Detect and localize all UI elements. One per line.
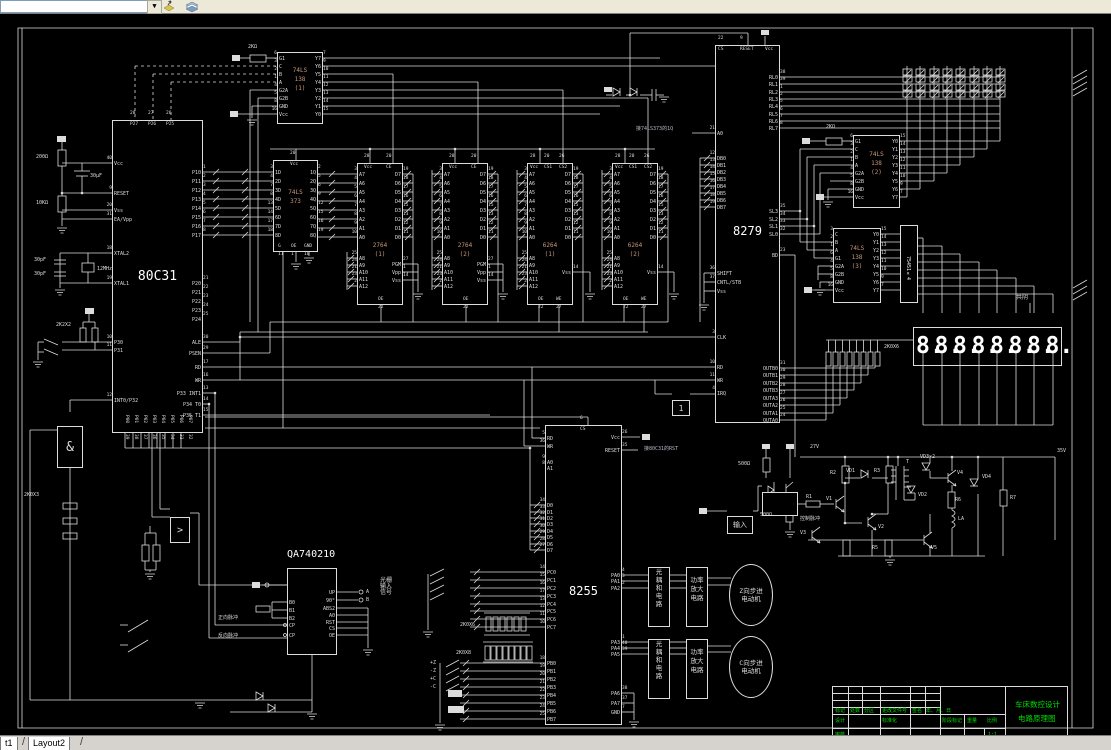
pin-GND: GND8 [279,104,288,110]
display-digit: 8. [1027,331,1043,361]
titleblock-line [862,686,863,714]
pin-A0: A0 [329,613,335,619]
pin-A2: A28 [359,217,365,223]
terminal-block [604,87,612,92]
chip-8279: 8279A021DB012DB113DB214DB315DB416DB517DB… [715,45,780,423]
qa740210-label: QA740210 [287,552,335,558]
pin-A5: A55 [359,190,365,196]
terminal-block [699,508,707,514]
diode-icon [256,692,263,700]
pin-Y0: Y015 [873,232,879,238]
pc-label: +C [430,676,436,682]
pin-D6: D618 [565,181,571,187]
pin-A: A1 [855,163,858,169]
vd1-label: VD1 [846,468,855,474]
drawing-canvas[interactable]: & > 1 输入 光 耦 和 电 路 功率 放大 电路 Z向步进 电动机 光 耦… [0,14,1111,735]
pin-D4: D416 [395,199,401,205]
mc-label: -C [430,684,436,690]
pin-P21: P2122 [192,290,201,296]
pin-SL0: SL032 [769,232,778,238]
pin-90°: 90° [326,598,335,604]
resistor [843,540,850,556]
chip-75451×4: 75451×4 [900,225,918,303]
titleblock-text: 年、月、日 [926,708,951,714]
pin-D6: D618 [650,181,656,187]
wire [435,725,445,730]
titleblock-text: 车床数控设计 [1015,700,1060,709]
pin-Vcc: Vcc28 [449,165,457,171]
pin-D0: D011 [480,235,486,241]
wire [836,496,844,502]
wire [430,569,444,576]
pin-Y2: Y213 [315,96,321,102]
pin-Y1: Y114 [315,104,321,110]
pin-Y3: Y312 [873,256,879,262]
chip-label: 2764 [443,242,487,249]
display-digit: 8. [1046,331,1062,361]
junction-dot [61,192,64,195]
pin-A6: A64 [359,181,365,187]
pin-D2: D213 [395,217,401,223]
pin-OUTB3: OUTB328 [763,388,778,394]
c30pf_a-label: 30pF [34,257,46,263]
wire [423,632,433,637]
junction-dot [844,456,847,459]
pin-Vcc: Vcc28 [530,165,538,171]
junction-dot [454,148,457,151]
v2-label: V2 [878,524,884,530]
pin-A1: A19 [529,226,535,232]
pin-BD: BD23 [772,253,778,259]
pin-IRQ: IRQ4 [717,391,726,397]
display-digit: 8. [990,331,1006,361]
pin-G2B: G2B5 [855,179,864,185]
pin-D1: D112 [480,226,486,232]
pin-Vss: Vss14 [647,270,656,276]
pin-ALE: ALE30 [192,340,201,346]
pin-4D: 4D8 [275,197,281,203]
xtal-label: 12MHz [97,266,112,272]
vd4-label: VD4 [982,474,991,480]
pin-RL0: RL038 [769,75,778,81]
pin-PC6: PC611 [547,617,556,623]
chip-74LS: 74LS3731D32D43D74D85D136D147D178D181Q22Q… [273,160,318,252]
t-label: T [906,459,909,465]
pin-Y5: Y510 [892,179,898,185]
chip-74LS: 74LS138(3)C3B2A1G16G2A4G2B5GND8Vcc16Y015… [833,228,881,303]
pin-A10: A1021 [529,270,538,276]
pin-Y7: Y77 [315,56,321,62]
pin-A9: A924 [614,263,620,269]
tab-model[interactable]: t1 [0,737,18,750]
junction-dot [214,392,217,395]
pin-Y1: Y114 [892,147,898,153]
pin-A9: A924 [529,263,535,269]
terminal-block [230,111,238,117]
v5-label: V5 [931,545,937,551]
chip-80C31: 80C31Vcc40RESET9Vss20EA/Vpp31XTAL218XTAL… [112,120,203,433]
r5-label: R5 [872,545,878,551]
pin-1Q: 1Q2 [310,170,316,176]
pin-D6: D618 [480,181,486,187]
resistor [763,458,770,472]
pin-Vcc: Vcc [765,47,773,53]
pin-PC5: PC512 [547,609,556,615]
junction-dot [806,218,809,221]
chip-74LS: 74LS138(1)G16C3B2A1G2A4G2B5GND8Vcc16Y77Y… [277,52,323,124]
resistor [142,545,149,561]
input-box: 输入 [727,516,753,534]
pin-A12: A122 [359,284,368,290]
wire [446,660,459,667]
titleblock-line [1067,686,1068,742]
pin-P11: P112 [192,179,201,185]
pin-A: A1 [279,80,282,86]
resistor [82,263,94,272]
pin-P07: P0732 [186,415,192,431]
pin-A0: A010 [359,235,365,241]
pin-A4: A46 [359,199,365,205]
pin-P01: P0138 [132,415,138,431]
wire [815,290,825,295]
pin-OUTA3: OUTA327 [763,396,778,402]
wire [430,593,444,600]
chip-QA740210: B0B1B2CPCPUP90°ABS2A0RSTCSOE [287,568,337,655]
conn373-label: 接74LS373的1Q [636,126,673,132]
pin-RL6: RL67 [769,119,778,125]
pin-A6: A64 [614,181,620,187]
combo-dropdown-icon[interactable]: ▼ [147,0,162,14]
rn_pb-label: 2K0X8 [456,650,471,656]
wire [363,650,373,655]
pin-Y4: Y411 [873,264,879,270]
pin-D2: D213 [650,217,656,223]
wire [44,339,58,345]
terminal-block [642,434,650,440]
pin-2D: 2D4 [275,179,281,185]
pin-G2B: G2B5 [279,96,288,102]
pin-P30: P3010 [114,340,123,346]
junction-dot [977,456,980,459]
wire [446,676,459,683]
pin-D3: D315 [565,208,571,214]
pin-D7: D727 [547,548,553,554]
pin-A3: A37 [444,208,450,214]
pin-G: G11 [278,244,281,250]
junction-dot [539,148,542,151]
r500_b-label: 500Ω [760,512,772,518]
pin-A7: A73 [359,172,365,178]
pin-P03: P0336 [150,415,156,431]
titleblock-line [832,686,1068,687]
pin-A6: A64 [444,181,450,187]
diode-icon [922,463,930,470]
pin-A0: A021 [717,131,723,137]
pin-B: B2 [835,240,838,246]
pin-P00: P0039 [123,415,129,431]
wire [304,258,314,263]
terminal-block [57,136,66,142]
pin-CS: CS22 [718,47,723,53]
junction-dot [624,148,627,151]
junction-dot [844,522,847,525]
pin-P27: P2728 [130,122,138,128]
pin-XTAL1: XTAL119 [114,281,129,287]
wire [498,294,508,299]
pin-PB1: PB119 [547,669,556,675]
pin-INT0/P32: INT0/P3212 [114,398,138,404]
layer-combo[interactable] [0,0,148,13]
opto-circuit-1: 光 耦 和 电 路 [648,567,670,627]
pz-label: +Z [430,660,436,666]
signal-node [359,598,363,602]
pin-7D: 7D17 [275,224,281,230]
pin-PGM: PGM27 [392,262,401,268]
pin-CS1: CS120 [629,165,637,171]
pin-P17: P178 [192,233,201,239]
pin-PB5: PB523 [547,701,556,707]
pin-D3: D331 [547,522,553,528]
buffer-gate: > [170,517,190,543]
pin-A10: A1021 [444,270,453,276]
resistor [868,352,873,366]
pin-C: C3 [279,64,282,70]
pin-6D: 6D14 [275,215,281,221]
ctrl-label: 控制脉冲 [800,516,820,522]
pin-D5: D517 [650,190,656,196]
pin-P13: P134 [192,197,201,203]
pin-2Q: 2Q5 [310,179,316,185]
pin-SL3: SL335 [769,209,778,215]
pin-A12: A122 [444,284,453,290]
pin-Vcc: Vcc26 [611,435,620,441]
junction-dot [871,513,874,516]
resistor [503,646,508,660]
pin-CS: CS [329,626,335,632]
pin-4Q: 4Q9 [310,197,316,203]
pin-P24: P2425 [192,317,201,323]
pin-PA7: PA737 [611,701,620,707]
pin-A6: A64 [529,181,535,187]
pin-RL3: RL32 [769,97,778,103]
tab-layout2[interactable]: Layout2 [28,737,70,750]
rn_pc-label: 2K0X6 [460,622,475,628]
pin-PB3: PB321 [547,685,556,691]
pin-RESET: RESET35 [605,448,620,454]
mz-label: -Z [430,668,436,674]
pin-D5: D517 [565,190,571,196]
pin-OUTB0: OUTB031 [763,366,778,372]
resistor [485,646,490,660]
titleblock-line [880,686,881,714]
resistor [58,150,66,166]
pin-P25: P2526 [166,122,174,128]
signal-node [359,590,363,594]
resistor [826,352,831,366]
motor-c: C向步进 电动机 [729,636,773,698]
pin-PC0: PC014 [547,570,556,576]
titleblock-text: 阶段标记 [942,718,962,724]
pin-P20: P2021 [192,281,201,287]
wire [430,585,444,592]
pin-Y3: Y312 [892,163,898,169]
pin-PA1: PA13 [611,579,620,585]
chip-6264: 6264(2)A73A64A55A46A37A28A19A010A825A924… [612,163,658,305]
la-label: LA [958,516,964,522]
vd2-label: VD2 [918,492,927,498]
junction-dot [529,447,532,450]
diode-icon [268,704,275,712]
pin-D5: D517 [480,190,486,196]
terminal-block [85,308,94,314]
wire [128,620,148,632]
pin-Vss: Vss20 [114,208,123,214]
pin-SHIFT: SHIFT36 [717,271,732,277]
wire [699,305,709,310]
wire [659,97,669,102]
wire [868,524,876,530]
pin-CS1: CS120 [544,165,552,171]
titleblock-text: 设计 [835,718,845,724]
wire [145,574,155,579]
pin-Vss: Vss [717,289,726,295]
pin-Y0: Y015 [892,139,898,145]
sigA-label: A [366,589,369,595]
pin-OUTA2: OUTA226 [763,403,778,409]
wire [823,202,833,207]
pin-PA5: PA539 [611,652,620,658]
v1-label: V1 [826,496,832,502]
pin-D3: D315 [395,208,401,214]
pin-A8: A825 [614,256,620,262]
pin-D4: D416 [480,199,486,205]
wire [413,294,423,299]
pin-GND: GND8 [855,187,864,193]
pin-Vcc: Vcc16 [279,112,288,118]
resistor [153,545,160,561]
pin-B1: B1 [289,608,295,614]
pin-PGM: PGM27 [477,262,486,268]
resistor [847,352,852,366]
resistor [80,328,86,342]
pin-P04: P0435 [159,415,165,431]
layers-icon[interactable] [184,0,198,12]
pin-WE: WE27 [641,297,646,303]
junction-dot [951,456,954,459]
pin-A4: A46 [444,199,450,205]
pin-WE: WE27 [556,297,561,303]
titleblock-text: 处数 [850,708,860,714]
titleblock-text: 标准化 [882,718,897,724]
pin-XTAL2: XTAL218 [114,251,129,257]
titleblock-text: 分区 [864,708,874,714]
pin-RL7: RL78 [769,126,778,132]
wire [195,703,205,708]
pin-Y4: Y411 [892,171,898,177]
chip-label: 6264 [528,242,572,249]
pin-5Q: 5Q12 [310,206,316,212]
pin-PB2: PB220 [547,677,556,683]
chip-2764: 2764(2)A73A64A55A46A37A28A19A010A825A924… [442,163,488,305]
terminal-block [448,706,464,713]
r1-label: R1 [806,494,812,500]
pin-G1: G16 [835,256,841,262]
rn2k0x3-label: 2K0X3 [24,492,39,498]
resistor [886,466,893,483]
chip-2764: 2764(1)A73A64A55A46A37A28A19A010A825A924… [357,163,403,305]
pin-CP: CP [289,633,295,639]
junction-dot [369,148,372,151]
junction-dot [887,456,890,459]
wire [585,294,595,299]
pin-DB5: DB517 [717,191,726,197]
pin-DB6: DB618 [717,198,726,204]
resistor [491,646,496,660]
pin-Y6: Y69 [315,64,321,70]
pin-Y7: Y77 [892,195,898,201]
titleblock-line [910,686,911,714]
pin-CNTL/STB: CNTL/STB37 [717,280,741,286]
pin-A2: A28 [529,217,535,223]
pin-P16: P167 [192,224,201,230]
rn_disp-label: 2K0X6 [884,344,899,350]
resistor [256,606,270,612]
pin-A9: A924 [359,263,365,269]
pin-A3: A37 [614,208,620,214]
wire [247,120,257,125]
pin-CLK: CLK3 [717,335,726,341]
resistor [250,55,266,62]
pin-PC3: PC317 [547,594,556,600]
gongyin-label: 共阴 [1016,295,1028,301]
pin-P33 INT1: P33 INT113 [177,391,201,397]
pin-A1: A19 [614,226,620,232]
pin-3D: 3D7 [275,188,281,194]
pin-GND: GND7 [611,710,620,716]
pin-P23: P2324 [192,308,201,314]
display-digit: 8. [916,331,932,361]
resistor [806,501,820,507]
r10k-label: 10KΩ [36,200,48,206]
pin-A1: A19 [359,226,365,232]
pin-D4: D416 [565,199,571,205]
pin-OUTA0: OUTA024 [763,418,778,424]
pin-D1: D112 [650,226,656,232]
pin-A0: A010 [444,235,450,241]
junction-dot [81,192,84,195]
connrst-label: 接80C31的RST [644,446,678,452]
chip-8255: 8255RD5WR36A09A18D034D133D232D331D430D52… [545,425,622,725]
diode-icon [970,479,978,486]
pin-D6: D618 [395,181,401,187]
wire [430,577,444,584]
wire [669,294,679,299]
make-layer-current-icon[interactable] [162,0,176,12]
display-digit: 8. [1009,331,1025,361]
diode-icon [613,88,620,96]
pin-A11: A1123 [529,277,538,283]
pin-PA6: PA638 [611,691,620,697]
pin-A1: A18 [547,466,553,472]
v4-label: V4 [957,470,963,476]
pin-Vcc: Vcc16 [835,288,844,294]
amp-circuit-2: 功率 放大 电路 [686,639,708,699]
pin-D5: D529 [547,535,553,541]
chip-74LS: 74LS138(2)G16C3B2A1G2A4G2B5GND8Vcc16Y015… [853,135,900,208]
pin-Y2: Y213 [873,248,879,254]
pin-CS2: CS226 [644,165,652,171]
motor-z: Z向步进 电动机 [729,564,773,626]
